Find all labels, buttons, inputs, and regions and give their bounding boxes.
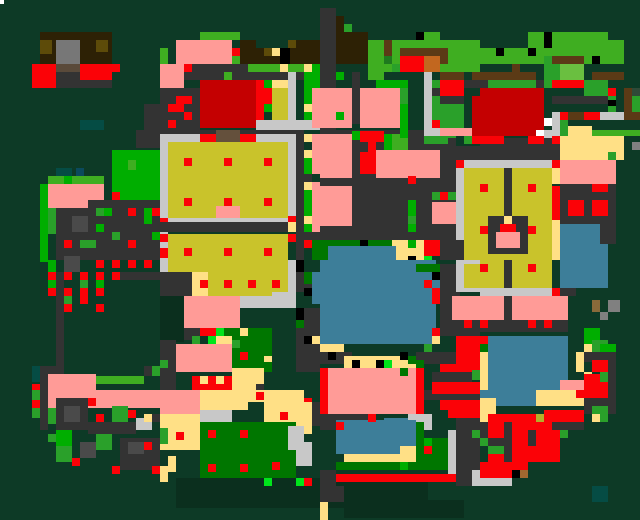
map-tile: [56, 272, 64, 374]
map-tile: [160, 260, 168, 272]
map-tile: [504, 168, 512, 218]
map-tile: [512, 296, 568, 320]
map-tile: [584, 80, 608, 96]
map-tile: [112, 260, 120, 268]
map-tile: [408, 240, 416, 248]
map-tile: [32, 400, 40, 408]
map-tile: [376, 64, 392, 72]
map-tile: [304, 158, 312, 174]
map-tile: [552, 80, 584, 88]
map-tile: [32, 64, 56, 88]
map-tile: [200, 134, 216, 142]
map-tile: [152, 366, 160, 376]
map-tile: [264, 80, 272, 88]
map-tile: [224, 248, 232, 256]
map-tile: [96, 414, 104, 422]
map-tile: [328, 390, 416, 414]
map-tile: [312, 64, 320, 72]
map-tile: [456, 336, 480, 364]
map-tile: [304, 216, 312, 224]
map-tile: [472, 370, 480, 380]
map-tile: [488, 336, 568, 390]
map-tile: [544, 32, 552, 48]
map-tile: [552, 288, 560, 296]
map-tile: [472, 136, 480, 144]
map-tile: [240, 328, 248, 336]
map-tile: [360, 131, 384, 142]
map-tile: [80, 240, 96, 248]
map-tile: [320, 134, 352, 178]
map-tile: [336, 112, 344, 120]
map-tile: [592, 184, 608, 192]
map-tile: [552, 168, 560, 184]
map-tile: [464, 320, 472, 328]
map-tile: [376, 150, 440, 178]
map-tile: [160, 48, 168, 64]
map-tile: [488, 438, 504, 446]
map-tile: [472, 470, 480, 486]
map-tile: [112, 232, 120, 240]
map-tile: [560, 112, 568, 120]
map-tile: [96, 304, 104, 312]
map-tile: [96, 272, 104, 280]
map-tile: [400, 368, 408, 376]
map-tile: [80, 288, 88, 296]
map-tile: [480, 184, 488, 192]
map-tile: [304, 478, 312, 486]
map-tile: [96, 208, 104, 216]
map-tile: [448, 410, 480, 418]
map-tile: [224, 72, 232, 80]
map-tile: [40, 184, 48, 262]
map-tile: [184, 64, 192, 72]
map-tile: [64, 240, 72, 248]
map-tile: [480, 264, 488, 272]
map-tile: [160, 390, 200, 414]
map-tile: [320, 502, 328, 520]
map-tile: [216, 336, 232, 344]
map-tile: [408, 200, 416, 216]
map-tile: [56, 446, 72, 462]
map-tile: [592, 200, 608, 216]
map-tile: [440, 240, 464, 260]
map-tile: [320, 186, 352, 226]
map-tile: [432, 80, 440, 88]
map-tile: [88, 398, 96, 406]
map-tile: [528, 226, 536, 234]
map-tile: [192, 336, 200, 344]
map-tile: [152, 414, 160, 422]
map-tile: [320, 470, 336, 486]
map-tile: [552, 186, 560, 220]
map-tile: [304, 224, 312, 232]
map-tile: [528, 320, 536, 328]
map-tile: [448, 192, 456, 200]
map-tile: [352, 360, 360, 368]
map-tile: [288, 64, 304, 72]
map-tile: [160, 64, 184, 88]
map-tile: [384, 134, 392, 142]
map-tile: [312, 72, 320, 88]
map-tile: [408, 356, 416, 364]
map-tile: [48, 208, 56, 234]
map-tile: [480, 226, 488, 234]
map-tile: [376, 80, 400, 88]
map-tile: [480, 344, 488, 352]
map-tile: [304, 240, 312, 248]
map-tile: [184, 158, 192, 166]
map-tile: [128, 410, 136, 418]
map-tile: [280, 64, 288, 72]
map-tile: [320, 390, 328, 414]
map-tile: [432, 328, 440, 336]
map-tile: [552, 136, 560, 144]
map-tile: [56, 64, 80, 72]
map-tile: [424, 280, 432, 288]
map-tile: [184, 296, 240, 328]
map-tile: [96, 260, 104, 268]
map-tile: [264, 48, 272, 56]
map-tile: [568, 112, 584, 120]
map-tile: [424, 344, 432, 352]
map-tile: [608, 352, 616, 390]
map-tile: [528, 430, 536, 446]
map-tile: [264, 104, 272, 112]
map-tile: [144, 208, 152, 224]
map-tile: [336, 32, 368, 64]
map-tile: [608, 100, 616, 106]
map-tile: [592, 486, 608, 502]
map-tile: [312, 88, 352, 128]
map-tile: [584, 382, 608, 390]
map-tile: [32, 390, 40, 400]
map-tile: [208, 464, 216, 472]
map-tile: [368, 40, 384, 80]
map-tile: [56, 168, 72, 176]
map-tile: [80, 280, 88, 288]
map-tile: [304, 150, 312, 158]
map-tile: [552, 96, 608, 104]
map-tile: [48, 280, 56, 288]
map-tile: [552, 160, 560, 168]
map-tile: [400, 104, 408, 130]
map-tile: [176, 432, 184, 440]
map-tile: [464, 264, 480, 288]
map-tile: [80, 296, 88, 304]
map-tile: [200, 390, 248, 410]
map-tile: [120, 272, 160, 280]
map-tile: [32, 366, 40, 382]
map-tile: [560, 430, 568, 438]
map-tile: [304, 104, 312, 112]
map-tile: [544, 410, 584, 422]
map-tile: [80, 442, 96, 458]
map-tile: [528, 136, 544, 144]
map-tile: [600, 224, 616, 244]
map-tile: [32, 408, 40, 418]
map-tile: [232, 48, 240, 56]
map-tile: [288, 222, 296, 232]
map-tile: [480, 352, 488, 390]
map-tile: [400, 130, 408, 138]
map-tile: [480, 478, 512, 486]
map-tile: [48, 272, 56, 280]
map-tile: [432, 372, 472, 382]
map-tile: [400, 60, 408, 68]
map-tile: [304, 134, 312, 142]
map-tile: [592, 72, 624, 80]
map-tile: [224, 280, 232, 288]
map-tile: [336, 72, 344, 80]
map-tile: [136, 130, 160, 148]
map-tile: [312, 182, 320, 232]
map-tile: [432, 88, 440, 96]
map-tile: [64, 288, 72, 296]
map-tile: [248, 280, 256, 288]
map-tile: [440, 128, 472, 136]
map-tile: [88, 200, 160, 208]
map-tile: [48, 434, 56, 442]
map-tile: [264, 198, 272, 206]
map-tile: [440, 192, 448, 200]
map-tile: [480, 320, 488, 328]
map-tile: [320, 368, 328, 390]
map-tile: [584, 112, 600, 120]
map-tile: [592, 414, 600, 422]
map-tile: [512, 64, 520, 72]
map-tile: [536, 414, 544, 422]
map-tile: [240, 430, 248, 438]
map-tile: [496, 48, 504, 56]
map-tile: [552, 422, 584, 430]
map-tile: [536, 80, 544, 88]
map-tile: [112, 272, 120, 280]
map-tile: [48, 408, 56, 424]
map-tile: [112, 466, 120, 474]
map-tile: [240, 464, 248, 472]
map-tile: [440, 72, 464, 80]
pixel-city-map: [0, 0, 640, 520]
map-tile: [432, 272, 440, 280]
map-tile: [416, 32, 424, 40]
map-tile: [400, 352, 408, 360]
map-tile: [632, 142, 640, 150]
map-tile: [432, 192, 440, 200]
map-tile: [384, 360, 392, 368]
map-tile: [352, 131, 360, 140]
map-tile: [528, 48, 536, 56]
map-tile: [304, 190, 312, 216]
map-tile: [424, 128, 440, 136]
map-tile: [496, 232, 520, 248]
map-tile: [128, 442, 144, 454]
map-tile: [488, 446, 504, 454]
map-tile: [400, 462, 408, 470]
map-tile: [240, 134, 256, 142]
map-tile: [304, 288, 312, 296]
map-tile: [64, 304, 72, 312]
map-tile: [440, 80, 464, 96]
map-tile: [168, 120, 176, 128]
map-tile: [112, 406, 128, 422]
map-tile: [512, 470, 520, 478]
map-tile: [528, 32, 608, 48]
map-tile: [408, 224, 416, 232]
map-tile: [312, 402, 320, 426]
map-tile: [144, 442, 152, 450]
map-tile: [88, 422, 136, 434]
map-tile: [160, 248, 168, 258]
map-tile: [504, 260, 512, 288]
map-tile: [576, 352, 584, 372]
map-tile: [440, 56, 448, 64]
map-tile: [200, 410, 232, 422]
map-tile: [624, 112, 640, 120]
map-tile: [424, 32, 440, 40]
map-tile: [144, 104, 160, 132]
map-tile: [200, 376, 208, 384]
map-tile: [584, 344, 592, 352]
map-tile: [256, 120, 320, 130]
map-tile: [264, 248, 272, 256]
map-tile: [432, 390, 480, 394]
map-tile: [248, 64, 280, 72]
map-tile: [344, 24, 352, 32]
map-tile: [176, 40, 232, 64]
map-tile: [552, 220, 560, 260]
map-tile: [560, 288, 576, 296]
map-tile: [432, 202, 456, 224]
map-tile: [344, 454, 400, 462]
map-tile: [480, 136, 504, 144]
map-tile: [520, 470, 528, 478]
map-tile: [480, 438, 488, 446]
map-tile: [144, 366, 152, 376]
map-tile: [464, 168, 480, 260]
map-tile: [480, 160, 552, 168]
map-tile: [424, 438, 432, 446]
map-tile: [528, 184, 536, 192]
map-tile: [304, 182, 312, 190]
map-tile: [0, 0, 4, 4]
map-tile: [176, 344, 232, 372]
map-tile: [416, 438, 448, 470]
map-tile: [312, 336, 320, 344]
map-tile: [216, 328, 224, 336]
map-tile: [56, 430, 72, 446]
map-tile: [608, 88, 616, 96]
map-tile: [48, 176, 104, 184]
map-tile: [368, 414, 376, 422]
map-tile: [144, 260, 152, 268]
map-tile: [320, 260, 436, 344]
map-tile: [552, 56, 584, 64]
map-tile: [500, 224, 516, 232]
map-tile: [232, 56, 240, 64]
map-tile: [96, 434, 112, 450]
map-tile: [216, 376, 224, 384]
map-tile: [48, 374, 96, 390]
map-tile: [568, 200, 584, 216]
map-tile: [128, 260, 136, 268]
map-tile: [160, 222, 296, 232]
map-tile: [104, 208, 112, 216]
map-tile: [160, 360, 168, 368]
map-tile: [320, 486, 344, 502]
map-tile: [480, 336, 488, 344]
map-tile: [424, 446, 432, 454]
map-tile: [80, 120, 104, 130]
map-tile: [312, 134, 320, 174]
map-tile: [464, 80, 480, 88]
map-tile: [424, 240, 440, 256]
map-tile: [128, 160, 136, 170]
map-tile: [464, 136, 472, 144]
map-tile: [368, 142, 376, 166]
map-tile: [560, 160, 616, 184]
map-tile: [600, 372, 608, 382]
map-tile: [408, 216, 416, 224]
map-tile: [128, 240, 136, 248]
map-tile: [456, 146, 480, 160]
map-tile: [480, 72, 536, 80]
map-tile: [96, 40, 108, 52]
map-tile: [328, 352, 336, 360]
map-tile: [400, 88, 408, 104]
map-tile: [464, 160, 480, 168]
map-tile: [296, 260, 304, 272]
map-tile: [96, 288, 104, 296]
map-tile: [296, 442, 312, 466]
map-tile: [224, 198, 232, 206]
map-tile: [480, 296, 504, 320]
map-tile: [288, 234, 296, 242]
map-tile: [480, 320, 568, 332]
map-tile: [64, 296, 72, 304]
map-tile: [560, 380, 584, 390]
map-tile: [216, 206, 240, 218]
map-tile: [76, 168, 84, 176]
map-tile: [296, 320, 304, 328]
map-tile: [384, 142, 392, 150]
map-tile: [416, 368, 424, 390]
map-tile: [440, 400, 480, 410]
map-tile: [272, 48, 280, 56]
map-tile: [184, 248, 192, 256]
map-tile: [304, 272, 312, 284]
map-tile: [304, 174, 312, 182]
map-tile: [352, 72, 360, 124]
map-tile: [64, 176, 72, 184]
map-tile: [632, 88, 640, 96]
map-tile: [392, 64, 400, 72]
map-tile: [296, 478, 304, 486]
map-tile: [56, 40, 80, 64]
map-tile: [96, 224, 104, 232]
map-tile: [64, 256, 80, 272]
map-tile: [208, 430, 216, 438]
map-tile: [80, 64, 120, 72]
map-tile: [600, 112, 624, 120]
map-tile: [176, 96, 192, 104]
map-tile: [168, 104, 184, 112]
map-tile: [272, 292, 296, 308]
map-tile: [200, 328, 216, 336]
map-tile: [304, 64, 312, 72]
map-tile: [592, 300, 600, 312]
map-tile: [632, 96, 640, 112]
map-tile: [336, 474, 456, 482]
